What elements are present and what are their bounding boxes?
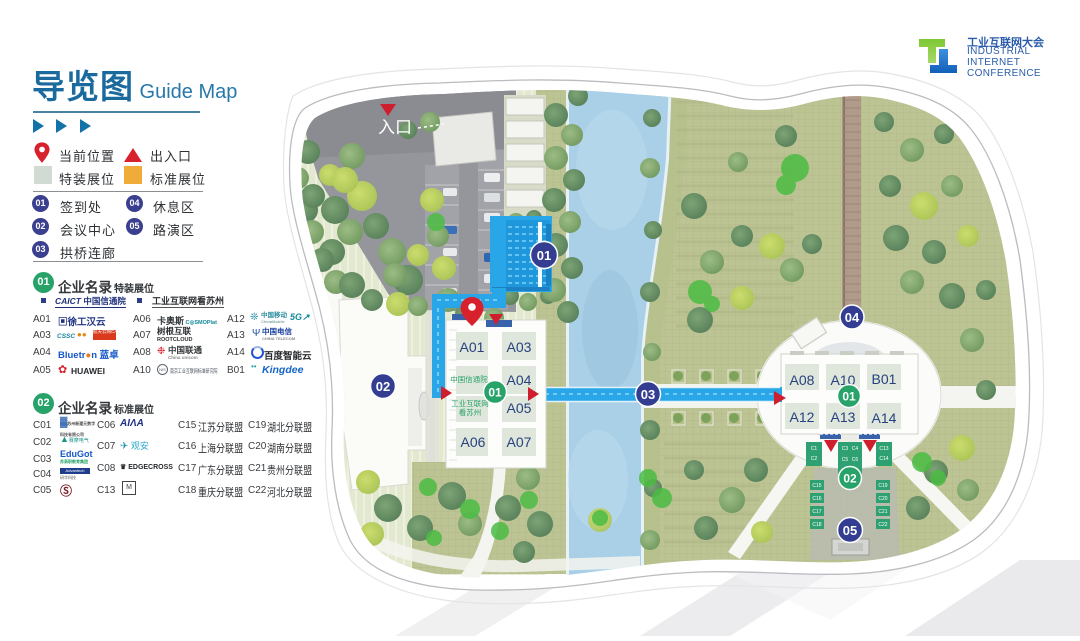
svg-text:03: 03 bbox=[641, 387, 655, 402]
svg-text:C6: C6 bbox=[852, 457, 859, 463]
svg-text:01: 01 bbox=[537, 248, 551, 263]
svg-text:A06: A06 bbox=[461, 434, 486, 450]
svg-text:C1: C1 bbox=[811, 446, 818, 452]
svg-text:01: 01 bbox=[488, 386, 502, 400]
svg-text:04: 04 bbox=[845, 310, 860, 325]
svg-text:A07: A07 bbox=[507, 434, 532, 450]
svg-text:C2: C2 bbox=[811, 456, 818, 462]
svg-text:C19: C19 bbox=[878, 483, 887, 489]
svg-text:C14: C14 bbox=[879, 456, 888, 462]
svg-text:05: 05 bbox=[843, 523, 857, 538]
svg-text:C3: C3 bbox=[842, 446, 849, 452]
svg-text:C22: C22 bbox=[878, 522, 887, 528]
svg-text:C15: C15 bbox=[812, 483, 821, 489]
svg-text:02: 02 bbox=[376, 379, 390, 394]
svg-text:C21: C21 bbox=[878, 509, 887, 515]
svg-text:C4: C4 bbox=[852, 446, 859, 452]
svg-text:01: 01 bbox=[842, 390, 856, 404]
svg-text:入口: 入口 bbox=[378, 118, 412, 137]
svg-text:02: 02 bbox=[843, 472, 857, 486]
svg-text:C17: C17 bbox=[812, 509, 821, 515]
svg-text:A08: A08 bbox=[790, 372, 815, 388]
svg-text:A01: A01 bbox=[460, 339, 485, 355]
svg-text:C13: C13 bbox=[879, 446, 888, 452]
svg-text:A14: A14 bbox=[872, 410, 897, 426]
svg-text:A12: A12 bbox=[790, 409, 815, 425]
svg-text:A05: A05 bbox=[507, 400, 532, 416]
svg-text:A04: A04 bbox=[507, 372, 532, 388]
svg-text:中国信通院: 中国信通院 bbox=[450, 374, 488, 384]
svg-text:C20: C20 bbox=[878, 496, 887, 502]
svg-text:C18: C18 bbox=[812, 522, 821, 528]
svg-text:C5: C5 bbox=[842, 457, 849, 463]
svg-text:C16: C16 bbox=[812, 496, 821, 502]
svg-text:看苏州: 看苏州 bbox=[459, 407, 482, 417]
svg-text:A13: A13 bbox=[831, 409, 856, 425]
svg-text:工业互联网: 工业互联网 bbox=[451, 398, 489, 408]
svg-text:A03: A03 bbox=[507, 339, 532, 355]
svg-text:B01: B01 bbox=[872, 371, 897, 387]
